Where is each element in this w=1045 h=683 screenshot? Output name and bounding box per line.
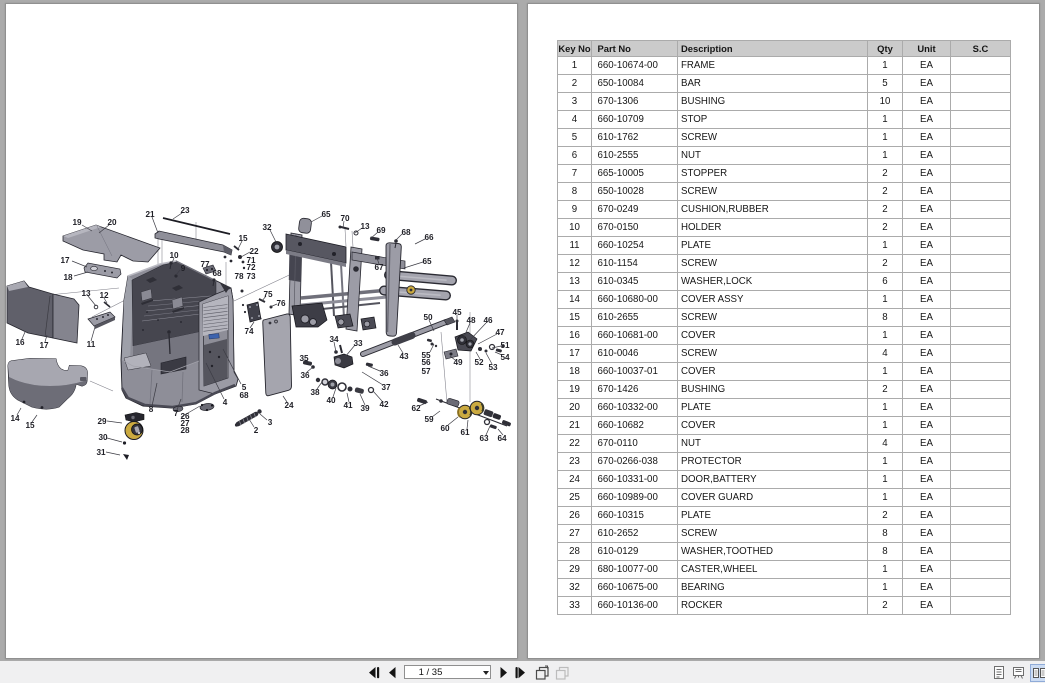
- svg-text:23: 23: [180, 206, 190, 215]
- svg-text:53: 53: [488, 363, 498, 372]
- svg-text:72: 72: [246, 263, 256, 272]
- svg-text:28: 28: [180, 426, 190, 435]
- svg-text:17: 17: [60, 256, 70, 265]
- svg-text:11: 11: [87, 340, 96, 349]
- svg-text:3: 3: [268, 418, 273, 427]
- svg-text:68: 68: [239, 391, 249, 400]
- svg-text:68: 68: [212, 269, 222, 278]
- svg-text:48: 48: [466, 316, 476, 325]
- svg-text:33: 33: [353, 339, 363, 348]
- svg-text:57: 57: [421, 367, 431, 376]
- svg-text:68: 68: [401, 228, 411, 237]
- svg-text:78: 78: [234, 272, 244, 281]
- svg-text:77: 77: [200, 260, 210, 269]
- svg-text:14: 14: [10, 414, 20, 423]
- svg-text:29: 29: [97, 417, 107, 426]
- svg-text:9: 9: [181, 264, 186, 273]
- svg-text:30: 30: [98, 433, 108, 442]
- svg-text:37: 37: [381, 383, 391, 392]
- svg-text:59: 59: [424, 415, 434, 424]
- svg-text:4: 4: [223, 398, 228, 407]
- svg-text:18: 18: [63, 273, 73, 282]
- svg-text:35: 35: [299, 354, 309, 363]
- svg-text:15: 15: [25, 421, 35, 430]
- svg-text:43: 43: [399, 352, 409, 361]
- svg-text:65: 65: [422, 257, 432, 266]
- svg-text:20: 20: [107, 218, 117, 227]
- svg-text:31: 31: [96, 448, 106, 457]
- svg-text:47: 47: [495, 328, 505, 337]
- svg-text:39: 39: [360, 404, 370, 413]
- svg-text:50: 50: [423, 313, 433, 322]
- svg-text:41: 41: [343, 401, 353, 410]
- svg-text:2: 2: [254, 426, 259, 435]
- svg-text:16: 16: [15, 338, 25, 347]
- svg-text:46: 46: [483, 316, 493, 325]
- svg-text:61: 61: [460, 428, 470, 437]
- svg-text:52: 52: [474, 358, 484, 367]
- svg-text:70: 70: [340, 214, 350, 223]
- svg-text:19: 19: [72, 218, 82, 227]
- svg-text:12: 12: [99, 291, 109, 300]
- svg-text:54: 54: [500, 353, 510, 362]
- svg-text:62: 62: [411, 404, 421, 413]
- svg-text:73: 73: [246, 272, 256, 281]
- svg-text:17: 17: [39, 341, 49, 350]
- svg-text:66: 66: [424, 233, 434, 242]
- svg-text:10: 10: [169, 251, 179, 260]
- svg-text:51: 51: [500, 341, 510, 350]
- svg-text:56: 56: [421, 358, 431, 367]
- svg-text:60: 60: [440, 424, 450, 433]
- svg-text:63: 63: [479, 434, 489, 443]
- svg-text:36: 36: [379, 369, 389, 378]
- svg-text:64: 64: [497, 434, 507, 443]
- svg-text:38: 38: [310, 388, 320, 397]
- svg-text:8: 8: [149, 405, 154, 414]
- svg-text:74: 74: [244, 327, 254, 336]
- svg-text:75: 75: [263, 290, 273, 299]
- svg-text:76: 76: [276, 299, 286, 308]
- svg-text:24: 24: [284, 401, 294, 410]
- svg-text:15: 15: [238, 234, 248, 243]
- svg-text:65: 65: [321, 210, 331, 219]
- svg-text:7: 7: [174, 409, 179, 418]
- svg-text:69: 69: [376, 226, 386, 235]
- svg-text:13: 13: [81, 289, 91, 298]
- svg-text:42: 42: [379, 400, 389, 409]
- svg-text:13: 13: [360, 222, 370, 231]
- svg-text:22: 22: [249, 247, 259, 256]
- svg-text:45: 45: [452, 308, 462, 317]
- svg-text:40: 40: [326, 396, 336, 405]
- svg-text:21: 21: [145, 210, 155, 219]
- svg-text:67: 67: [374, 263, 384, 272]
- svg-text:49: 49: [453, 358, 463, 367]
- svg-text:34: 34: [329, 335, 339, 344]
- svg-text:36: 36: [300, 371, 310, 380]
- svg-text:32: 32: [262, 223, 272, 232]
